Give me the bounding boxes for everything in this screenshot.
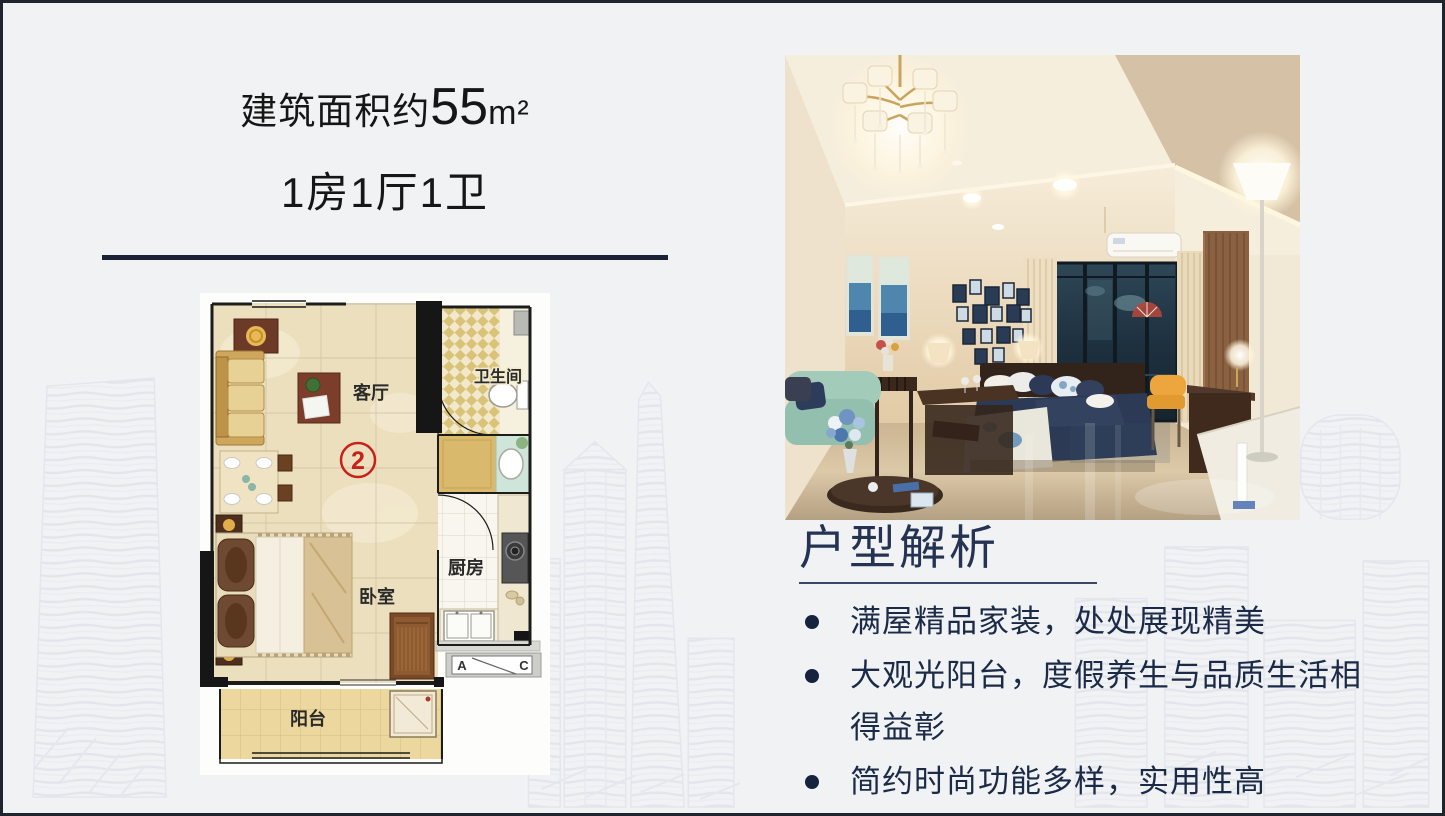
interior-photo <box>785 55 1300 520</box>
analysis-bullet-2: 大观光阳台，度假养生与品质生活相得益彰 <box>799 650 1399 754</box>
chandelier <box>828 55 972 199</box>
ac-label-c: C <box>519 658 529 673</box>
presentation-slide: 建筑面积约55m² 1房1厅1卫 <box>0 0 1445 816</box>
analysis-bullet-list: 满屋精品家装，处处展现精美 大观光阳台，度假养生与品质生活相得益彰 简约时尚功能… <box>799 596 1399 808</box>
bullet-text: 大观光阳台，度假养生与品质生活相得益彰 <box>850 650 1390 754</box>
stove <box>502 533 528 583</box>
heading-underline <box>799 582 1097 584</box>
divider-rule <box>102 255 668 260</box>
balcony-wall-left <box>200 677 228 687</box>
kitchen-sink <box>444 611 494 641</box>
vanity-cabinet <box>438 435 496 493</box>
duct-wall <box>416 301 442 433</box>
wash-basin <box>499 449 523 479</box>
ac-label-a: A <box>457 658 467 673</box>
analysis-section: 户型解析 满屋精品家装，处处展现精美 大观光阳台，度假养生与品质生活相得益彰 简… <box>799 523 1399 810</box>
headline-block: 建筑面积约55m² 1房1厅1卫 <box>102 81 668 260</box>
area-value: 55 <box>430 78 488 136</box>
wall-artwork <box>847 255 909 339</box>
sofa <box>216 351 264 445</box>
bullet-dot-icon <box>805 615 819 629</box>
room-label-balcony: 阳台 <box>290 708 326 729</box>
water-heater <box>514 311 530 335</box>
bed <box>216 533 352 657</box>
room-label-kitchen: 厨房 <box>448 557 484 578</box>
area-prefix: 建筑面积约 <box>240 91 430 132</box>
bullet-text: 简约时尚功能多样，实用性高 <box>850 756 1266 808</box>
coffee-table <box>298 373 340 423</box>
floorplan-image: A C <box>200 293 550 775</box>
layout-line: 1房1厅1卫 <box>102 171 668 215</box>
bullet-dot-icon <box>805 669 819 683</box>
bullet-text: 满屋精品家装，处处展现精美 <box>850 596 1266 648</box>
ac-platform: A C <box>446 653 541 677</box>
analysis-heading: 户型解析 <box>799 523 1399 575</box>
analysis-bullet-1: 满屋精品家装，处处展现精美 <box>799 596 1399 648</box>
area-unit: m² <box>488 94 530 132</box>
unit-number-text: 2 <box>351 447 365 475</box>
coffee-table <box>827 476 943 513</box>
analysis-bullet-3: 简约时尚功能多样，实用性高 <box>799 756 1399 808</box>
plant <box>516 437 528 449</box>
wardrobe <box>390 613 434 679</box>
balcony-wall-right <box>434 677 444 687</box>
wall-lamp <box>234 319 278 353</box>
towel-swan <box>1086 394 1114 408</box>
washing-machine <box>390 691 436 737</box>
room-label-bathroom: 卫生间 <box>474 367 522 386</box>
room-label-bedroom: 卧室 <box>359 586 395 607</box>
area-line: 建筑面积约55m² <box>102 81 668 139</box>
bullet-dot-icon <box>805 775 819 789</box>
left-structural-wall <box>200 551 214 685</box>
room-label-living: 客厅 <box>353 382 389 403</box>
